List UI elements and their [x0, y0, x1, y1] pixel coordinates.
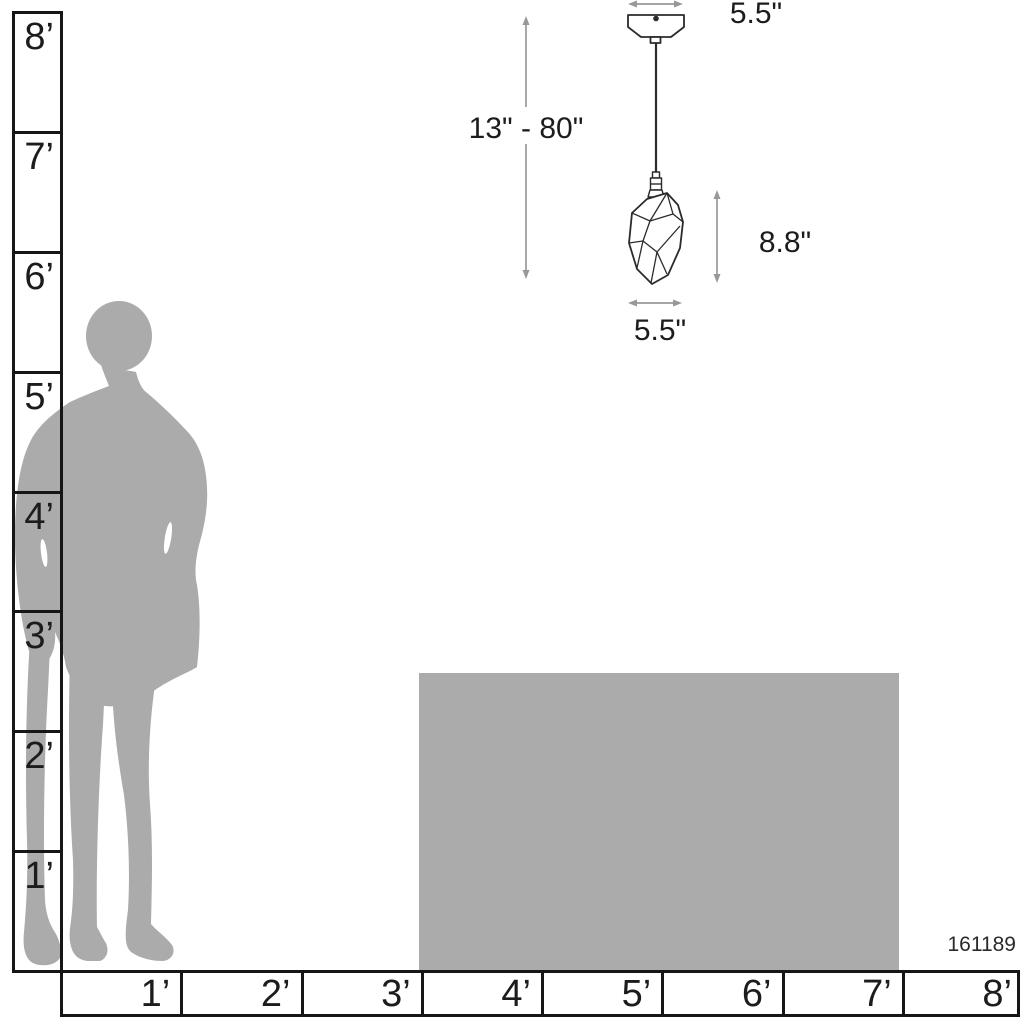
horizontal-ruler-cell-6ft: 6’: [664, 973, 784, 1014]
shade-width-label: 5.5": [610, 316, 710, 346]
canopy-screw: [653, 16, 659, 22]
person-right-leg: [112, 678, 174, 961]
vertical-ruler-cell-5ft: 5’: [15, 374, 60, 494]
horizontal-ruler-cell-1ft: 1’: [63, 973, 183, 1014]
canopy-width-arrow: [628, 1, 683, 8]
vertical-ruler: 8’ 7’ 6’ 5’ 4’ 3’ 2’ 1’: [12, 11, 63, 973]
hanging-height-arrow: [523, 16, 530, 279]
product-number: 161189: [916, 934, 1016, 955]
person-middle-leg: [69, 655, 107, 961]
vertical-ruler-cell-3ft: 3’: [15, 613, 60, 733]
hanging-height-label: 13" - 80": [426, 114, 626, 144]
vertical-ruler-cell-8ft: 8’: [15, 14, 60, 134]
horizontal-ruler-cell-2ft: 2’: [183, 973, 303, 1014]
horizontal-ruler-cell-7ft: 7’: [785, 973, 905, 1014]
shade-width-arrow: [628, 300, 682, 307]
vertical-ruler-cell-4ft: 4’: [15, 494, 60, 614]
horizontal-ruler-cell-4ft: 4’: [424, 973, 544, 1014]
vertical-ruler-cell-2ft: 2’: [15, 733, 60, 853]
shade-height-arrow: [714, 190, 721, 283]
vertical-ruler-cell-1ft: 1’: [15, 853, 60, 970]
shade-fitter: [648, 172, 664, 197]
horizontal-ruler: 1’ 2’ 3’ 4’ 5’ 6’ 7’ 8’: [60, 970, 1020, 1017]
horizontal-ruler-cell-3ft: 3’: [304, 973, 424, 1014]
person-head: [86, 301, 152, 371]
dimension-arrows: [523, 1, 721, 307]
horizontal-ruler-cell-5ft: 5’: [544, 973, 664, 1014]
canopy-socket: [651, 37, 661, 43]
diagram-graphics: [0, 0, 1024, 1024]
pendant-light-drawing: [628, 15, 684, 284]
vertical-ruler-cell-6ft: 6’: [15, 254, 60, 374]
shade-outline: [629, 193, 683, 284]
vertical-ruler-cell-7ft: 7’: [15, 134, 60, 254]
shade-height-label: 8.8": [735, 228, 835, 258]
horizontal-ruler-cell-8ft: 8’: [905, 973, 1017, 1014]
canopy-width-label: 5.5": [706, 0, 806, 29]
